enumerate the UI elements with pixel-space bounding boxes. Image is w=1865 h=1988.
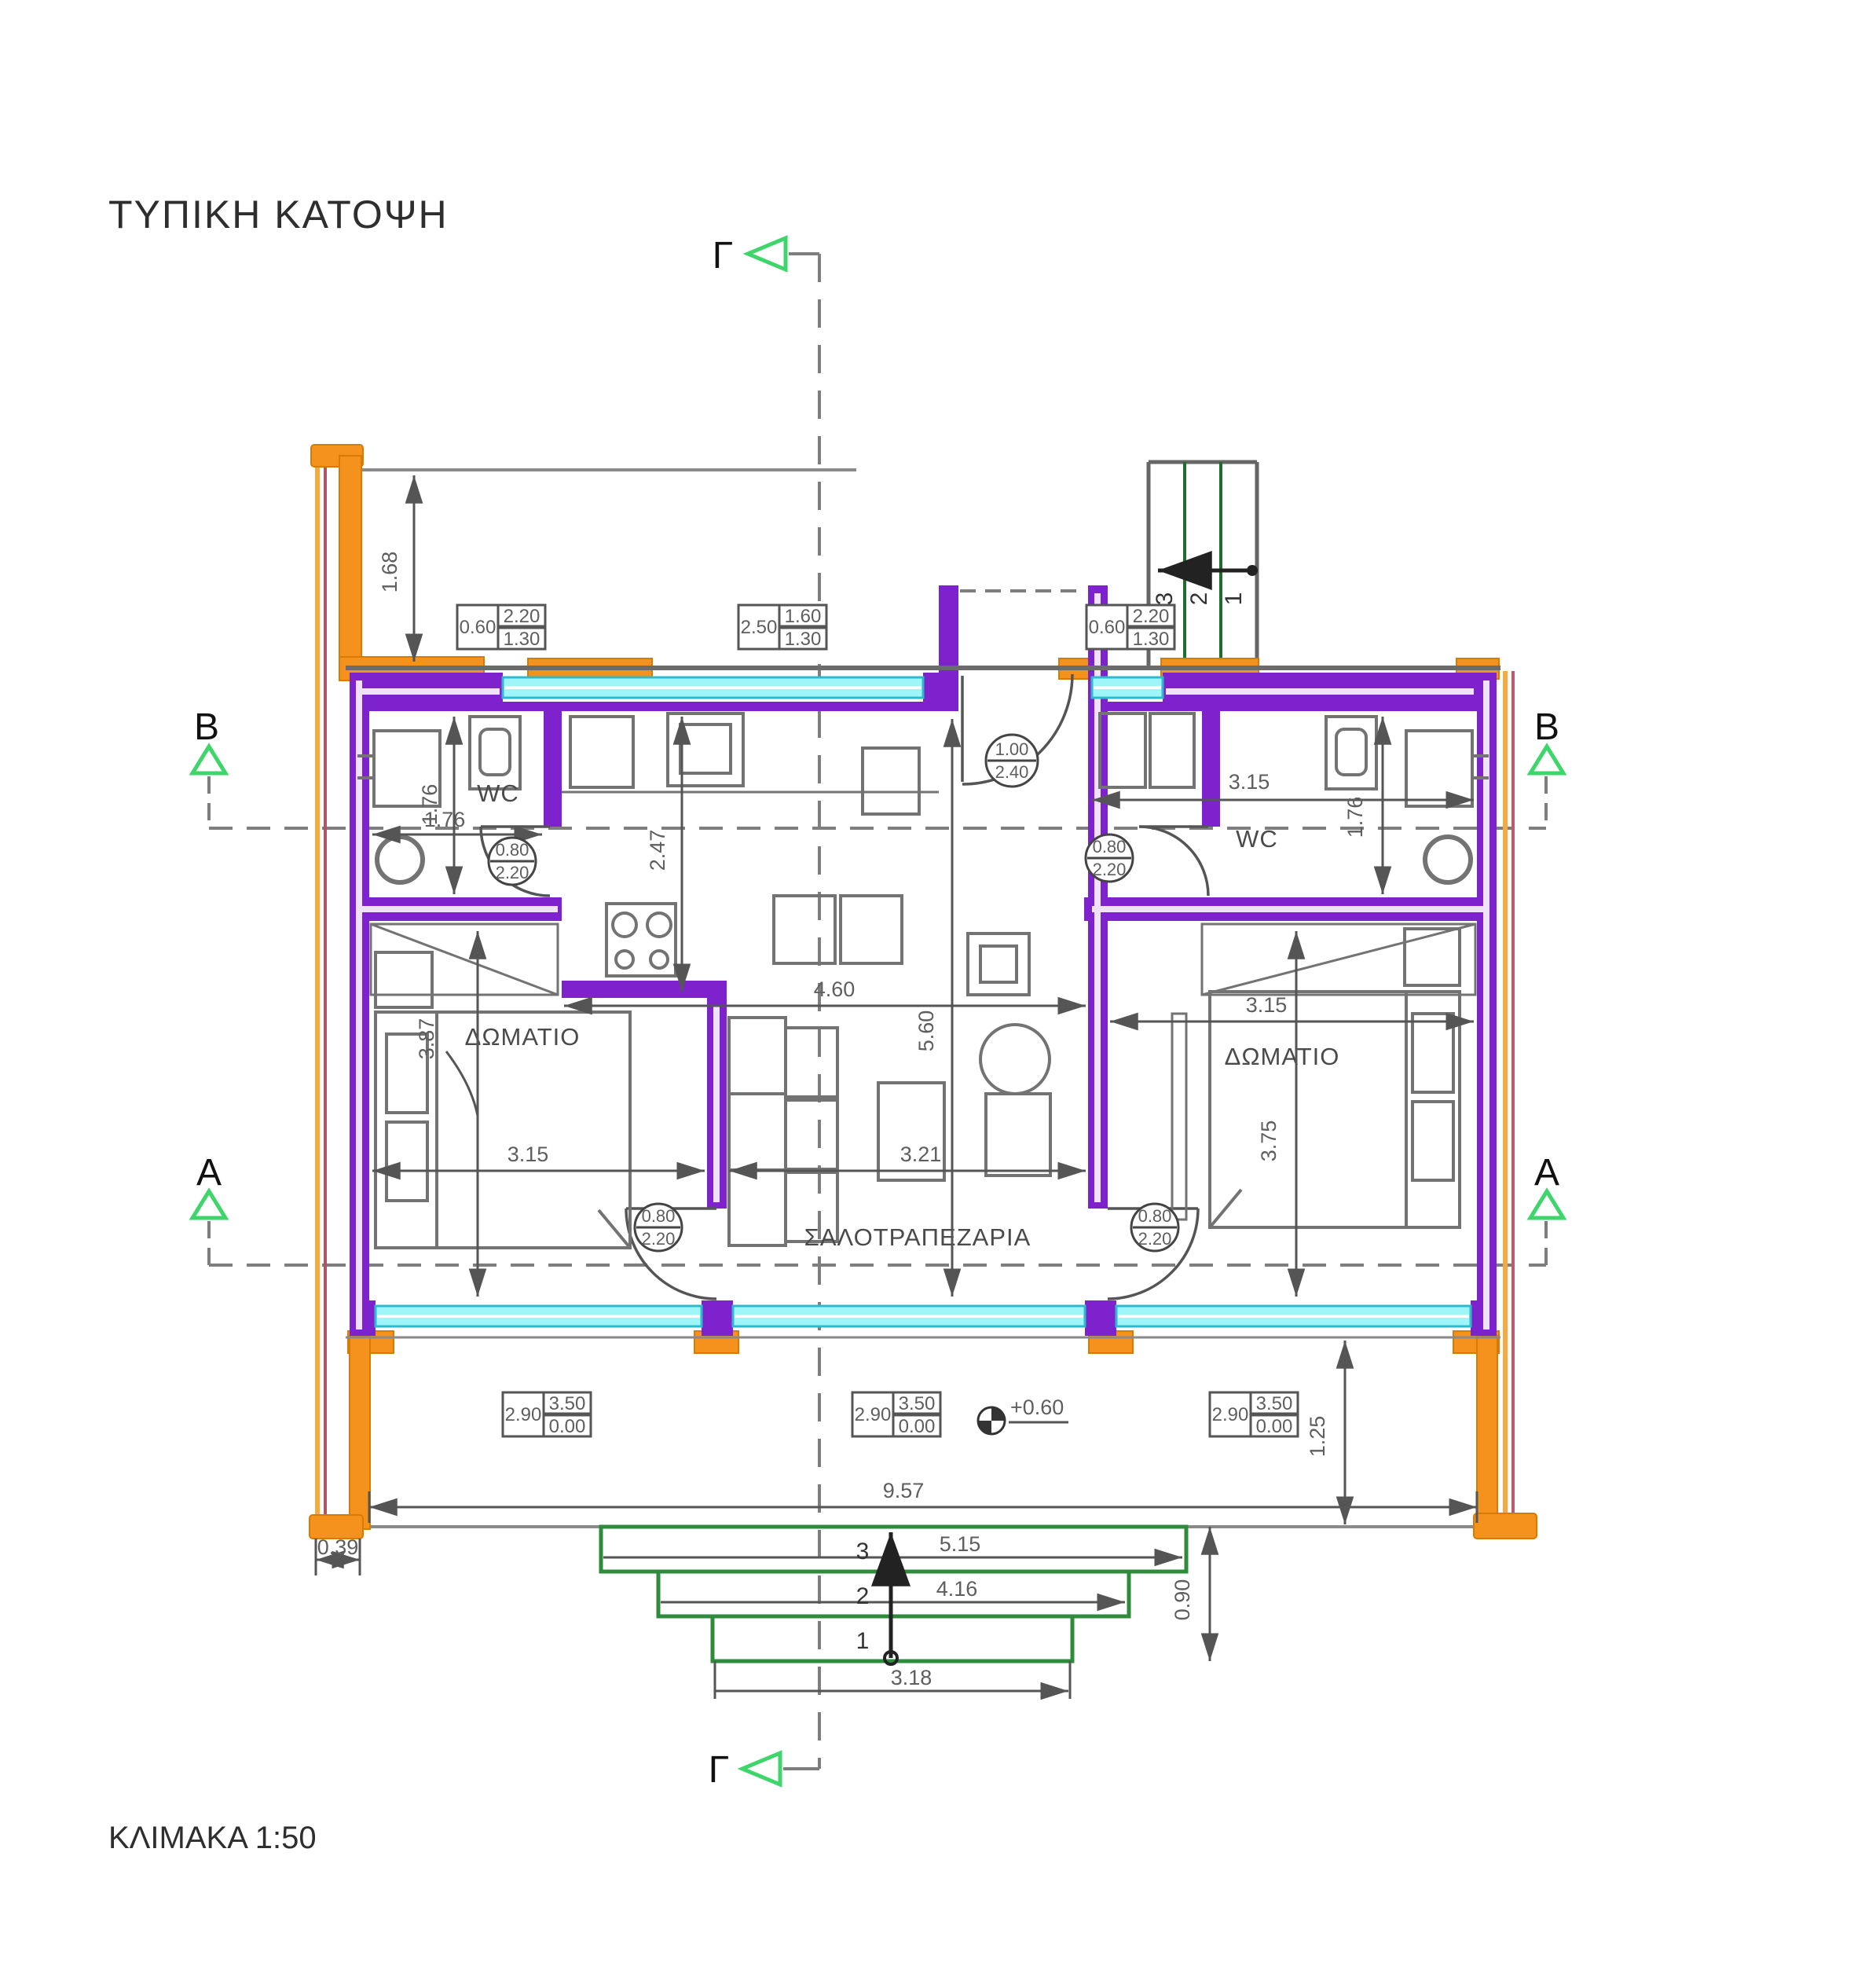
schedule-value: 3.50 bbox=[1256, 1393, 1293, 1414]
door-tag-value: 2.20 bbox=[1138, 1229, 1172, 1249]
marker-gamma-bottom: Γ bbox=[709, 1749, 780, 1791]
dim-bed-left-w: 3.15 bbox=[507, 1143, 549, 1166]
schedule-value: 3.50 bbox=[899, 1393, 936, 1414]
door-tag-bed-right: 0.80 2.20 bbox=[1131, 1204, 1178, 1251]
dim-wc-left-h: 1.76 bbox=[424, 808, 466, 831]
entrance-stub-left bbox=[939, 585, 958, 711]
furniture bbox=[357, 713, 1489, 1248]
room-label-bedroom-right: ΔΩΜΑΤΙΟ bbox=[1225, 1043, 1340, 1070]
level-marker: +0.60 bbox=[978, 1396, 1068, 1434]
schedule-value: 1.30 bbox=[504, 629, 540, 650]
schedule-value: 1.60 bbox=[785, 606, 822, 627]
dim-wc-right-v: 1.76 bbox=[1343, 797, 1367, 838]
dim-5-60: 5.60 bbox=[914, 1011, 938, 1052]
dim-3-75: 3.75 bbox=[1257, 1121, 1281, 1162]
dim-4-60: 4.60 bbox=[814, 977, 856, 1001]
dim-0-39: 0.39 bbox=[317, 1535, 359, 1559]
wc-right-door-arc bbox=[1139, 827, 1208, 896]
dim-1-25: 1.25 bbox=[1306, 1416, 1329, 1458]
step-3 bbox=[601, 1527, 1186, 1572]
door-tag-wc-right: 0.80 2.20 bbox=[1086, 834, 1133, 882]
marker-gamma-top-letter: Γ bbox=[713, 235, 733, 277]
page-titles: ΤΥΠΙΚΗ ΚΑΤΟΨΗ ΚΛΙΜΑΚΑ 1:50 bbox=[108, 193, 449, 1855]
room-label-bedroom-left: ΔΩΜΑΤΙΟ bbox=[465, 1023, 581, 1051]
schedule-box-top-left: 0.60 2.20 1.30 bbox=[457, 605, 545, 650]
dim-9-57: 9.57 bbox=[883, 1479, 925, 1502]
schedule-box-top-mid: 2.50 1.60 1.30 bbox=[738, 605, 826, 650]
marker-b-right-letter: B bbox=[1534, 706, 1559, 748]
door-tag-value: 2.20 bbox=[1093, 860, 1127, 879]
bed-right bbox=[1172, 929, 1460, 1227]
schedule-value: 3.50 bbox=[549, 1393, 586, 1414]
schedule-value: 0.60 bbox=[1089, 617, 1126, 638]
washer-icon bbox=[377, 837, 423, 882]
level-value: +0.60 bbox=[1010, 1396, 1064, 1419]
dim-hall-315: 3.15 bbox=[1229, 770, 1270, 794]
marker-a-left-letter: A bbox=[196, 1152, 222, 1194]
steps-bottom: 5.15 4.16 3.18 0.90 3 2 1 bbox=[601, 1527, 1210, 1699]
sofa bbox=[729, 1018, 837, 1245]
dim-1-68: 1.68 bbox=[378, 552, 401, 593]
marker-b-left: B bbox=[192, 706, 225, 773]
step-2 bbox=[658, 1572, 1129, 1616]
marker-a-right: A bbox=[1530, 1152, 1563, 1218]
marker-b-left-letter: B bbox=[194, 706, 219, 748]
gamma-top-arrow-icon bbox=[748, 238, 786, 270]
a-right-arrow-icon bbox=[1530, 1191, 1563, 1218]
dim-3-21: 3.21 bbox=[900, 1143, 942, 1166]
dim-4-16: 4.16 bbox=[936, 1577, 978, 1601]
schedule-value: 1.30 bbox=[785, 629, 822, 650]
door-tag-value: 0.80 bbox=[1138, 1206, 1172, 1226]
door-tag-value: 0.80 bbox=[642, 1206, 676, 1226]
marker-b-right: B bbox=[1530, 706, 1563, 773]
a-left-arrow-icon bbox=[192, 1191, 225, 1218]
b-left-arrow-icon bbox=[192, 746, 225, 773]
stairs-top-num-2: 2 bbox=[1186, 592, 1212, 606]
schedule-value: 0.00 bbox=[549, 1416, 586, 1437]
door-tag-value: 2.40 bbox=[995, 762, 1029, 782]
kitchen-fixtures bbox=[562, 713, 1029, 995]
dim-3-87: 3.87 bbox=[415, 1018, 438, 1060]
wall-kitchen-jog bbox=[562, 981, 727, 998]
door-tag-value: 0.80 bbox=[496, 840, 529, 860]
marker-gamma-bottom-letter: Γ bbox=[709, 1749, 729, 1791]
marker-a-right-letter: A bbox=[1534, 1152, 1559, 1194]
room-label-wc-right: WC bbox=[1236, 825, 1278, 853]
step-num-3: 3 bbox=[856, 1539, 870, 1564]
schedule-value: 2.90 bbox=[855, 1404, 892, 1425]
wall-wc-left bbox=[544, 711, 562, 827]
schedule-value: 0.00 bbox=[1256, 1416, 1293, 1437]
dim-0-90: 0.90 bbox=[1171, 1579, 1194, 1621]
wall-wc-right bbox=[1202, 711, 1220, 827]
schedule-box-balc-left: 2.90 3.50 0.00 bbox=[503, 1392, 591, 1437]
stairs-top-num-3: 3 bbox=[1152, 592, 1178, 606]
step-num-1: 1 bbox=[856, 1628, 870, 1654]
door-tag-bed-left: 0.80 2.20 bbox=[635, 1204, 682, 1251]
gamma-bottom-arrow-icon bbox=[742, 1753, 780, 1784]
schedule-value: 2.20 bbox=[1133, 606, 1170, 627]
dim-5-15: 5.15 bbox=[940, 1532, 981, 1556]
schedule-value: 2.20 bbox=[504, 606, 540, 627]
schedule-box-balc-right: 2.90 3.50 0.00 bbox=[1210, 1392, 1298, 1437]
marker-gamma-top: Γ bbox=[713, 235, 786, 277]
dim-3-18: 3.18 bbox=[891, 1666, 932, 1689]
washer-icon bbox=[1425, 837, 1471, 882]
schedule-box-balc-mid: 2.90 3.50 0.00 bbox=[852, 1392, 940, 1437]
schedule-value: 2.90 bbox=[1212, 1404, 1249, 1425]
schedule-box-top-right: 0.60 2.20 1.30 bbox=[1086, 605, 1174, 650]
door-tag-value: 0.80 bbox=[1093, 837, 1127, 856]
page-title: ΤΥΠΙΚΗ ΚΑΤΟΨΗ bbox=[108, 193, 449, 237]
door-tag-value: 2.20 bbox=[496, 863, 529, 882]
schedule-value: 0.60 bbox=[460, 617, 496, 638]
door-tag-wc-left: 0.80 2.20 bbox=[489, 838, 536, 885]
door-tag-value: 1.00 bbox=[995, 739, 1029, 759]
dining-set bbox=[980, 1025, 1050, 1176]
closet-left bbox=[371, 924, 558, 995]
schedule-value: 0.00 bbox=[899, 1416, 936, 1437]
scale-label: ΚΛΙΜΑΚΑ 1:50 bbox=[108, 1821, 317, 1855]
stairs-top-num-1: 1 bbox=[1221, 592, 1247, 606]
room-label-wc-left: WC bbox=[477, 779, 519, 807]
dim-bed-right-w: 3.15 bbox=[1246, 993, 1288, 1017]
room-label-living: ΣΑΛΟΤΡΑΠΕΖΑΡΙΑ bbox=[804, 1223, 1031, 1251]
schedule-value: 2.50 bbox=[741, 617, 778, 638]
step-num-2: 2 bbox=[856, 1583, 870, 1609]
b-right-arrow-icon bbox=[1530, 746, 1563, 773]
marker-a-left: A bbox=[192, 1152, 225, 1218]
floor-plan-page: ΤΥΠΙΚΗ ΚΑΤΟΨΗ ΚΛΙΜΑΚΑ 1:50 Γ Γ B bbox=[0, 0, 1865, 1988]
schedule-value: 1.30 bbox=[1133, 629, 1170, 650]
schedule-value: 2.90 bbox=[505, 1404, 542, 1425]
door-tag-value: 2.20 bbox=[642, 1229, 676, 1249]
door-tag-entrance: 1.00 2.40 bbox=[986, 735, 1038, 787]
hall-cabinets bbox=[1100, 713, 1194, 787]
stove-icon bbox=[606, 904, 676, 976]
dim-kitchen: 2.47 bbox=[646, 830, 669, 871]
